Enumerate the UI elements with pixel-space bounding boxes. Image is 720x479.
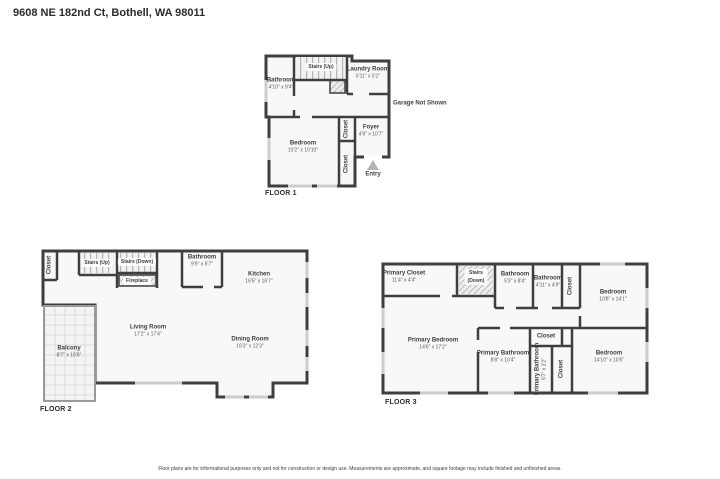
floor2-stairs-up-label: Stairs (Up) [81,259,112,267]
dining-room-label: Dining Room 16'3" x 12'3" [231,337,268,350]
room-name: Closet [344,120,351,138]
room-name: Stairs (Down) [118,258,156,266]
floor3-closet-top-label: Closet [568,277,575,295]
primary-bedroom-label: Primary Bedroom 14'6" x 17'2" [408,338,458,351]
room-dims: 10'8" x 14'1" [599,297,626,303]
room-name: Living Room [130,325,166,332]
room-name: Primary Closet [383,271,425,278]
floor1-title: FLOOR 1 [265,190,297,197]
room-dims: 17'2" x 17'4" [130,332,166,338]
room-name: Kitchen [245,272,272,279]
primary-bathroom-small-label: Primary Bathroom 5'7" x 3'2" [535,343,548,395]
room-name: Laundry Room [347,67,389,74]
floor2-title: FLOOR 2 [40,406,72,413]
room-name: Bathroom [501,272,529,279]
room-name: Closet [537,334,555,341]
floor2-stairs-down-label: Stairs (Down) [118,258,156,266]
room-name: Dining Room [231,337,268,344]
floor2-closet-label: Closet [47,256,54,274]
floor3-stairs-down-label: Stairs (Down) [465,269,488,285]
floor1-laundry-label: Laundry Room 5'11" x 5'1" [347,67,389,80]
room-dims: 4'11" x 4'9" [534,283,562,289]
note-text: Garage Not Shown [393,101,447,108]
room-name: Closet [568,277,575,295]
floor3-bathroom-left-label: Bathroom 5'3" x 8'4" [501,272,529,285]
room-dims: 8'7" x 15'6" [57,353,82,359]
room-dims: 5'3" x 8'4" [501,279,529,285]
room-dims: 5'11" x 5'1" [347,74,389,80]
balcony-label: Balcony 8'7" x 15'6" [57,346,82,359]
room-dims: 16'5" x 16'7" [245,279,272,285]
floor3-closet-bottom-label: Closet [559,360,566,378]
primary-bathroom-label: Primary Bathroom 8'8" x 10'4" [477,351,529,364]
floor1-stairs-up-label: Stairs (Up) [305,63,336,71]
room-name: Bathroom [534,276,562,283]
room-name: Stairs [465,269,488,277]
floor3-bedroom-bottom-label: Bedroom 14'10" x 10'5" [594,351,624,364]
room-name: Closet [47,256,54,274]
floor1-understair-closet [330,80,345,93]
room-name: Bathroom [267,78,295,85]
garage-note-label: Garage Not Shown [393,101,447,108]
room-dims: 10'2" x 10'10" [288,148,318,154]
room-dims: 14'6" x 17'2" [408,345,458,351]
floor1-entry-label: Entry [365,172,380,179]
entry-arrow-icon [367,160,379,170]
room-name: Fireplace [123,277,151,285]
room-name: Entry [365,172,380,179]
room-name: Bedroom [594,351,624,358]
room-name: Closet [559,360,566,378]
room-dims: 4'10" x 9'4" [267,85,295,91]
room-name: Primary Bathroom [477,351,529,358]
page-title: 9608 NE 182nd Ct, Bothell, WA 98011 [13,7,205,19]
living-room-label: Living Room 17'2" x 17'4" [130,325,166,338]
primary-closet-label: Primary Closet 11'4" x 4'4" [383,271,425,284]
room-name: Bathroom [188,255,216,262]
fireplace-label: Fireplace [123,277,151,285]
room-name: Bedroom [288,141,318,148]
room-dims: 4'9" x 10'7" [359,132,384,138]
room-name: Foyer [359,125,384,132]
room-dims: 9'9" x 5'7" [188,262,216,268]
room-dims: 8'8" x 10'4" [477,358,529,364]
room-name: Bedroom [599,290,626,297]
room-name: Closet [344,155,351,173]
floor3-bathroom-right-label: Bathroom 4'11" x 4'9" [534,276,562,289]
room-name: Primary Bathroom [535,343,542,395]
room-name: Primary Bedroom [408,338,458,345]
floor3-closet-mid-label: Closet [537,334,555,341]
room-name: Balcony [57,346,82,353]
floor1-bathroom-label: Bathroom 4'10" x 9'4" [267,78,295,91]
floor1-closet-lower-label: Closet [344,155,351,173]
room-name-2: (Down) [465,277,488,285]
room-dims: 16'3" x 12'3" [231,344,268,350]
floor1-bedroom-label: Bedroom 10'2" x 10'10" [288,141,318,154]
disclaimer-text: Floor plans are for informational purpos… [158,466,561,472]
floor1-foyer-label: Foyer 4'9" x 10'7" [359,125,384,138]
floor1-closet-upper-label: Closet [344,120,351,138]
floor3-title: FLOOR 3 [385,399,417,406]
floor2-bathroom-label: Bathroom 9'9" x 5'7" [188,255,216,268]
room-dims: 11'4" x 4'4" [383,278,425,284]
room-dims: 5'7" x 3'2" [542,343,548,395]
kitchen-label: Kitchen 16'5" x 16'7" [245,272,272,285]
floor3-bedroom-top-label: Bedroom 10'8" x 14'1" [599,290,626,303]
room-dims: 14'10" x 10'5" [594,358,624,364]
room-name: Stairs (Up) [81,259,112,267]
room-name: Stairs (Up) [305,63,336,71]
